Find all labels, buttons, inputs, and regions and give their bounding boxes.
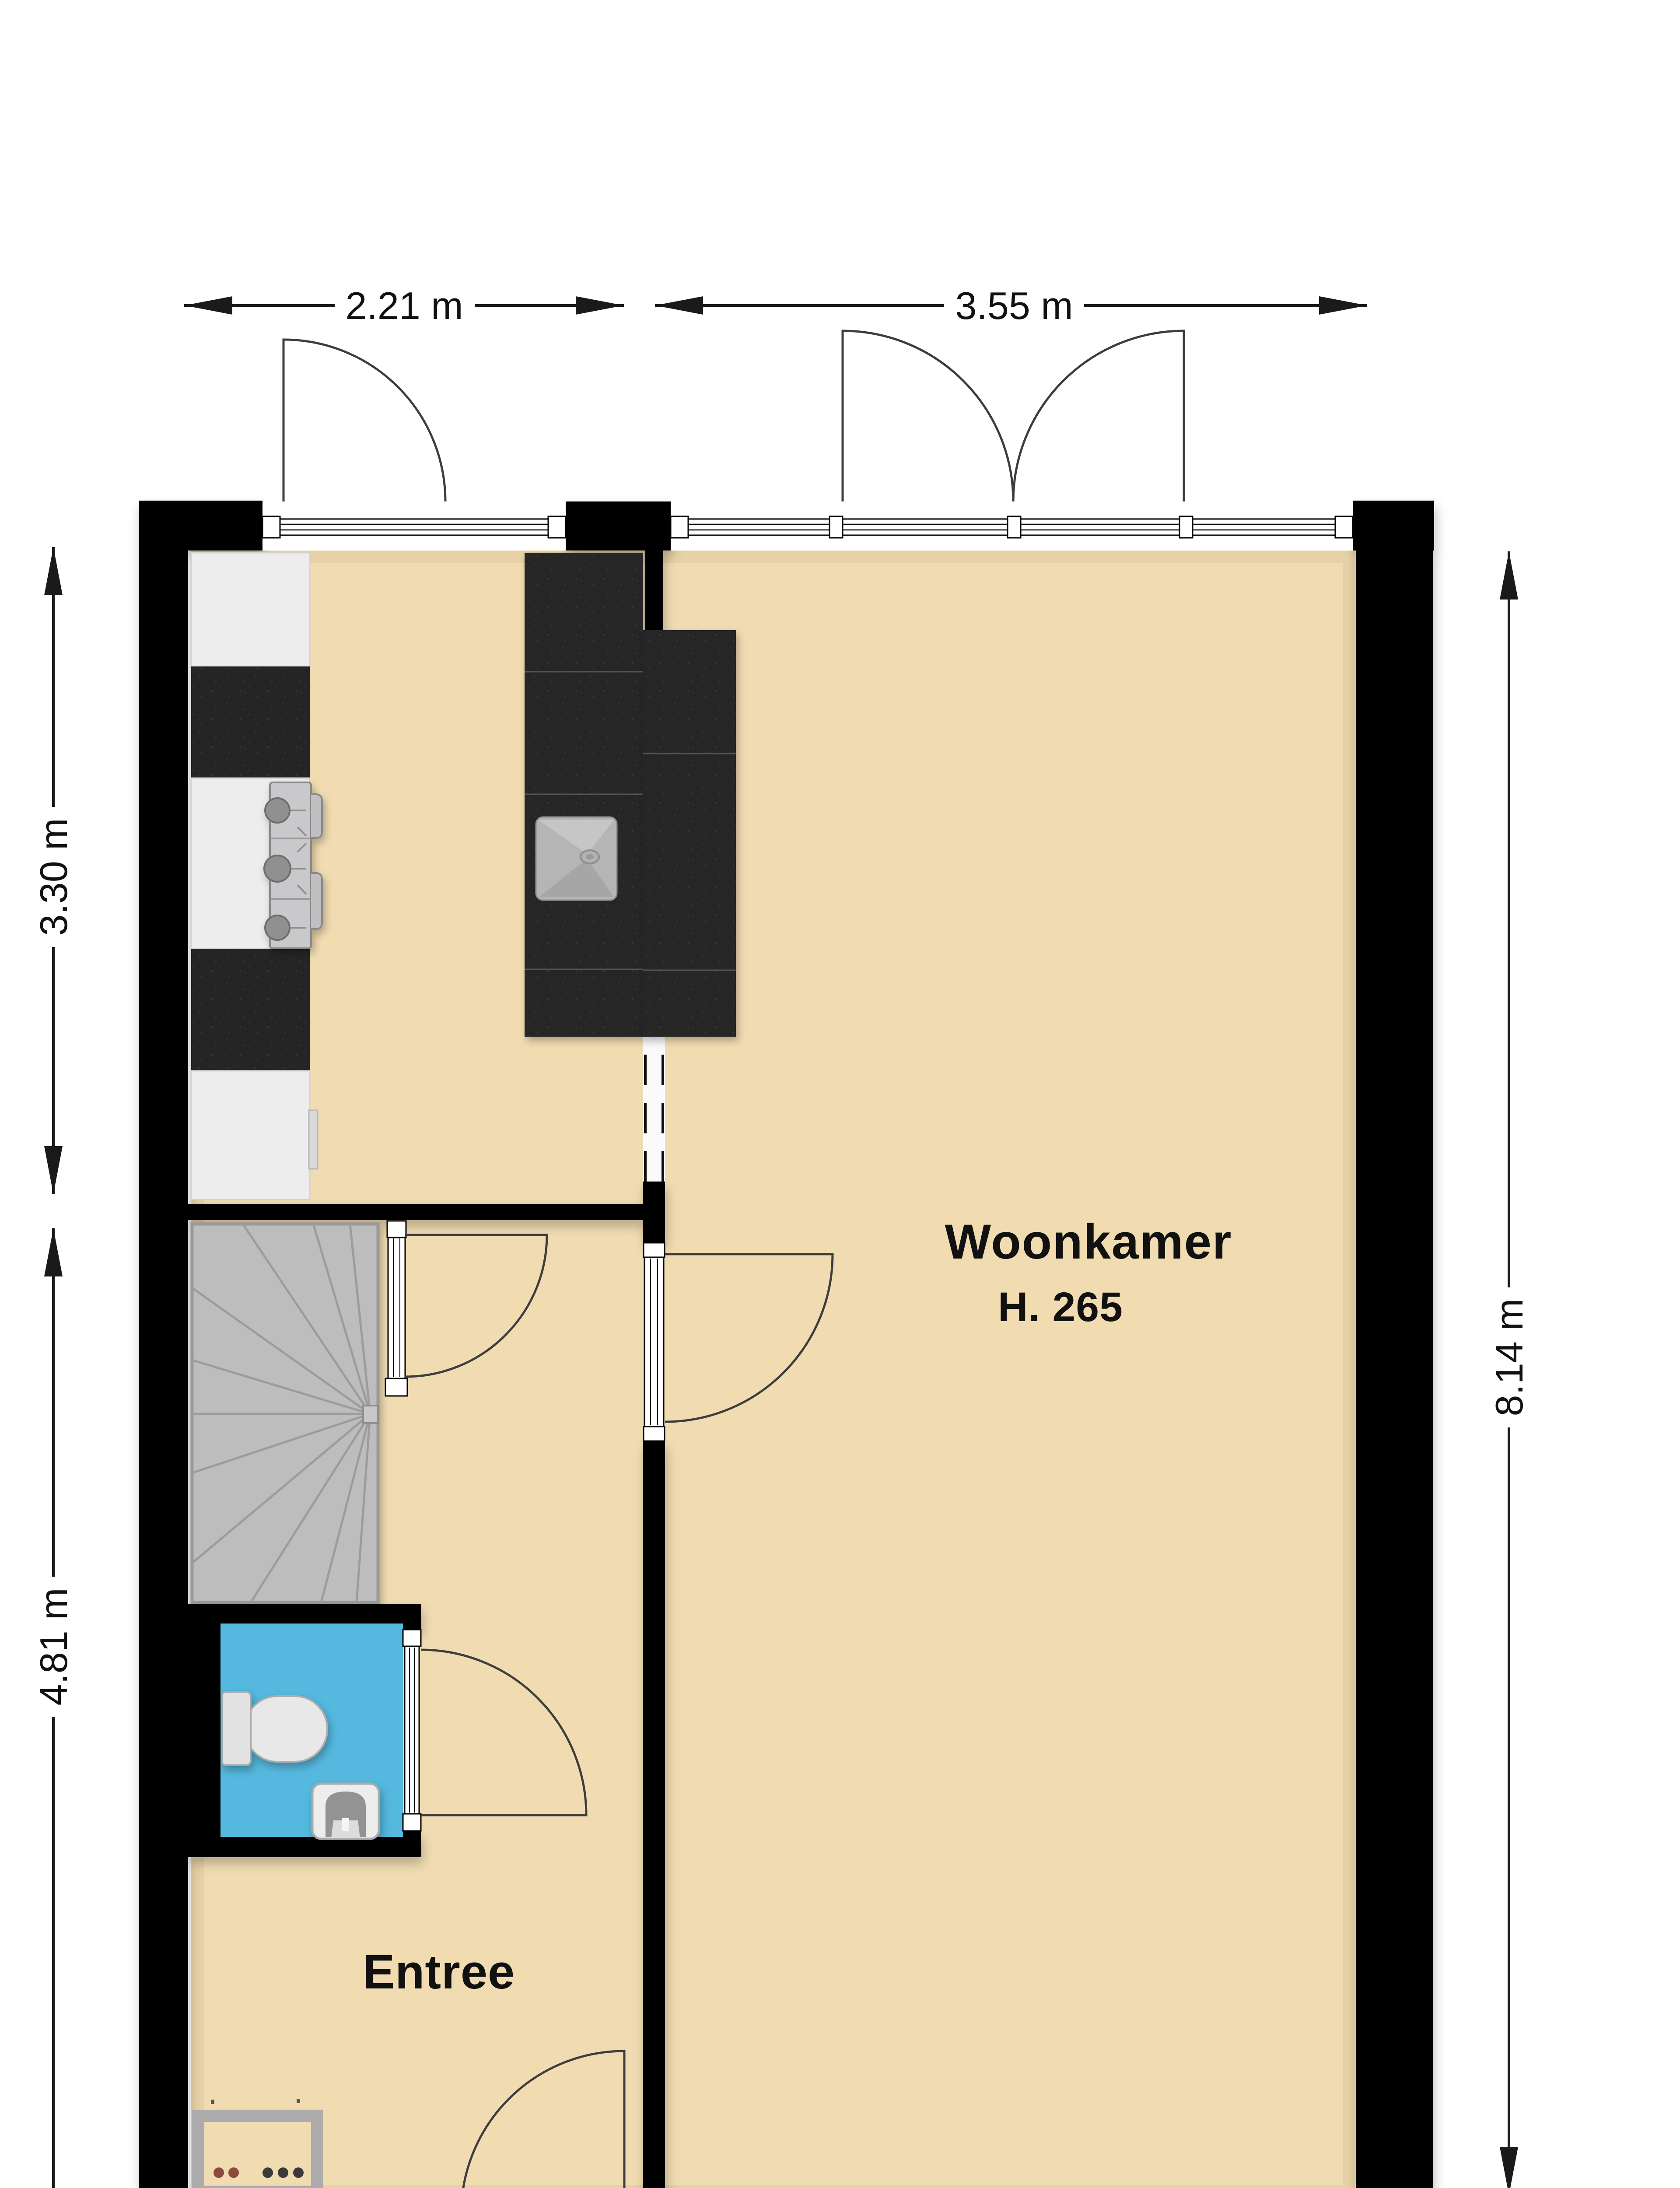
svg-text:4.81 m: 4.81 m — [32, 1588, 75, 1705]
svg-text:3.30 m: 3.30 m — [32, 818, 75, 936]
svg-text:H. 265: H. 265 — [998, 1284, 1123, 1330]
svg-text:8.14 m: 8.14 m — [1487, 1298, 1531, 1416]
svg-text:Entree: Entree — [363, 1945, 515, 1999]
svg-text:3.55 m: 3.55 m — [955, 284, 1073, 327]
svg-text:2.21 m: 2.21 m — [345, 284, 463, 327]
svg-text:Woonkamer: Woonkamer — [945, 1214, 1232, 1269]
